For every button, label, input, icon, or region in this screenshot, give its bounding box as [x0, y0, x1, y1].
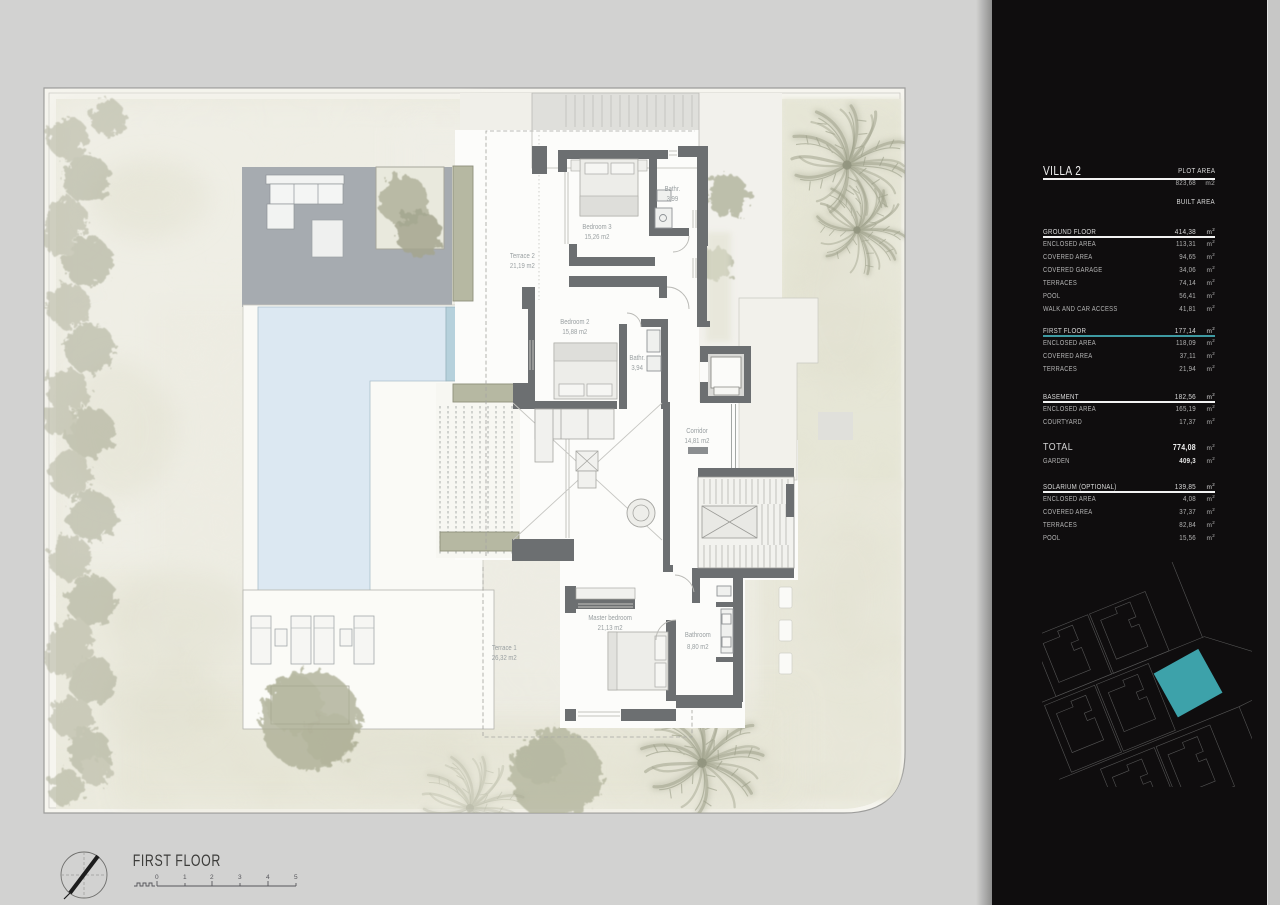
svg-text:Corridor: Corridor: [686, 428, 708, 436]
svg-text:3,99: 3,99: [667, 196, 679, 204]
svg-text:5: 5: [294, 874, 298, 881]
svg-text:15,88 m2: 15,88 m2: [562, 329, 587, 337]
svg-text:8,80 m2: 8,80 m2: [687, 644, 709, 652]
svg-text:15,26 m2: 15,26 m2: [585, 234, 610, 242]
svg-text:FIRST FLOOR: FIRST FLOOR: [133, 852, 221, 870]
svg-text:Bathr.: Bathr.: [629, 355, 645, 363]
svg-text:Bedroom 3: Bedroom 3: [582, 224, 611, 232]
svg-text:21,13 m2: 21,13 m2: [598, 625, 623, 633]
svg-text:Terrace 2: Terrace 2: [510, 253, 535, 261]
svg-text:Bathr.: Bathr.: [665, 186, 681, 194]
svg-text:3,94: 3,94: [631, 365, 643, 373]
svg-text:14,81 m2: 14,81 m2: [685, 438, 710, 446]
svg-text:4: 4: [266, 874, 270, 881]
svg-text:Terrace 1: Terrace 1: [492, 645, 517, 653]
svg-text:Master bedroom: Master bedroom: [588, 615, 632, 623]
svg-text:Bedroom 2: Bedroom 2: [560, 319, 589, 327]
svg-text:Bathroom: Bathroom: [685, 632, 711, 640]
svg-text:3: 3: [238, 874, 242, 881]
svg-text:1: 1: [183, 874, 187, 881]
svg-text:21,19 m2: 21,19 m2: [510, 263, 535, 271]
svg-text:2: 2: [210, 874, 214, 881]
svg-text:0: 0: [155, 874, 159, 881]
svg-text:26,32 m2: 26,32 m2: [492, 655, 517, 663]
